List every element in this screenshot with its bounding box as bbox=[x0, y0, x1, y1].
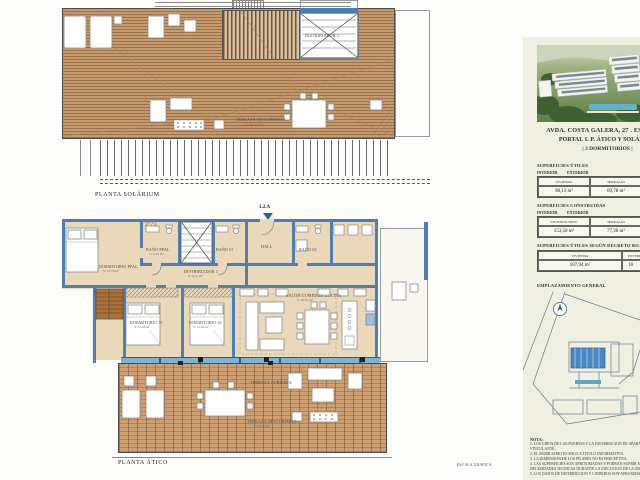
room-label-salon: SALON-COMEDOR-COCINA bbox=[286, 294, 341, 298]
td: 153,50 m² bbox=[538, 226, 590, 237]
plan-sheet: TERRAZA DESCUBIERTA S: 100,97 m² DISTRIB… bbox=[0, 0, 640, 480]
sofa bbox=[150, 100, 166, 122]
toilet bbox=[166, 228, 171, 233]
sofa bbox=[246, 302, 258, 350]
sub-interior: INTERIOR bbox=[537, 210, 557, 215]
appliance bbox=[348, 225, 358, 235]
room-label-hall: HALL bbox=[261, 245, 272, 249]
terrace-furniture bbox=[168, 14, 180, 26]
room-area: S: 11,08 m² bbox=[134, 326, 150, 330]
room-label-terraza-cubierta: TERRAZA CUBIERTA bbox=[250, 381, 292, 385]
stair-wall bbox=[300, 8, 358, 13]
highlighted-building bbox=[571, 348, 605, 368]
terrace-furniture-drawing bbox=[110, 360, 400, 460]
dining-table bbox=[292, 100, 326, 128]
sink bbox=[216, 226, 228, 232]
armchair bbox=[348, 373, 362, 389]
th: VIVIENDA bbox=[538, 177, 590, 186]
table-superficies-construidas: VIVIENDA+PPZC TERRAZAS SOLARIUM 153,50 m… bbox=[537, 216, 640, 238]
solarium-drawing bbox=[55, 0, 455, 200]
toilet bbox=[315, 228, 320, 233]
terrace-furniture bbox=[370, 100, 382, 110]
sun-lounger bbox=[146, 390, 164, 418]
room-area: S: 40,05 m² bbox=[297, 299, 313, 303]
solarium-terrace-area: S: 100,97 m² bbox=[245, 124, 263, 128]
th: EXTERIOR bbox=[622, 251, 640, 260]
td: 98,13 m² bbox=[538, 186, 590, 197]
sun-lounger bbox=[90, 16, 112, 48]
table-superficies-utiles: VIVIENDA TERRAZAS SOLARIUM 98,13 m² 69,7… bbox=[537, 176, 640, 198]
th: TERRAZAS bbox=[590, 177, 640, 186]
room-area: S: 4,21 m² bbox=[188, 275, 203, 279]
room-label-bano-02: BAÑO 02 bbox=[299, 248, 317, 252]
address-line3: | 3 DORMITORIOS | bbox=[530, 146, 640, 152]
nota-line: 5. LOS DATOS DE DISTRIBUCION Y LINDEROS … bbox=[530, 472, 640, 477]
toilet bbox=[233, 228, 238, 233]
address-block: AVDA. COSTA GALERA, 27 . ESTEPONA PORTAL… bbox=[530, 127, 640, 152]
room-label-bano-01: BAÑO 01 bbox=[216, 248, 234, 252]
wardrobe bbox=[184, 288, 232, 297]
sofa bbox=[308, 368, 342, 380]
solarium-stair-label: DISTRIBUIDOR 2 bbox=[305, 34, 339, 38]
td: 69,78 m² bbox=[590, 186, 640, 197]
side-table bbox=[214, 120, 224, 129]
appliance bbox=[362, 225, 372, 235]
site-pool bbox=[575, 380, 601, 384]
door-arc bbox=[261, 222, 274, 235]
nota-line: 1. LOS GIROS DE LAS PUERTAS Y LA DISTRIB… bbox=[530, 442, 640, 452]
solarium-plan-title: PLANTA SOLÁRIUM bbox=[95, 192, 160, 198]
dining-table bbox=[205, 390, 245, 416]
sofa bbox=[260, 302, 284, 313]
nota-line: 4. LAS SUPERFICIES SON APROXIMADAS Y POD… bbox=[530, 462, 640, 472]
sub-interior: INTERIOR bbox=[537, 170, 557, 175]
scale-bar bbox=[457, 470, 525, 480]
sub-exterior: EXTERIOR bbox=[567, 170, 588, 175]
site-plan-map bbox=[523, 292, 640, 437]
fridge bbox=[366, 314, 375, 325]
table-boja: VIVIENDA EXTERIOR 107,94 m² 18 bbox=[537, 250, 640, 272]
solarium-terrace-label: TERRAZA DESCUBIERTA bbox=[236, 118, 286, 122]
nota-block: NOTA: 1. LOS GIROS DE LAS PUERTAS Y LA D… bbox=[530, 437, 640, 476]
room-area: S: 27,07 m² bbox=[254, 425, 270, 429]
section-title-boja: SUPERFICIES ÚTILES SEGÚN DECRETO BOJA 21… bbox=[537, 243, 640, 248]
td: 18 bbox=[622, 260, 640, 271]
oven bbox=[366, 300, 375, 311]
td: 107,94 m² bbox=[538, 260, 622, 271]
room-area: S: 11,61 m² bbox=[193, 326, 209, 330]
coffee-table bbox=[266, 317, 282, 333]
nota-line: 3. LA DIMENSION DE LOS PILARES NO ES PRE… bbox=[530, 457, 640, 462]
terrace-furniture bbox=[148, 16, 164, 38]
scale-label: ESCALA GRAFICA bbox=[457, 464, 492, 468]
th: VIVIENDA+PPZC bbox=[538, 217, 590, 226]
compass-icon bbox=[554, 303, 567, 316]
th: TERRAZAS bbox=[590, 217, 640, 226]
sun-lounger bbox=[122, 390, 140, 418]
atico-plan-title: PLANTA ÁTICO bbox=[118, 460, 168, 466]
wardrobe bbox=[126, 288, 178, 297]
plot-line bbox=[112, 457, 392, 458]
site-plan-title: EMPLAZAMIENTO GENERAL bbox=[537, 283, 606, 288]
address-line1: AVDA. COSTA GALERA, 27 . ESTEPONA bbox=[530, 127, 640, 134]
sofa bbox=[260, 339, 284, 350]
rug bbox=[310, 412, 338, 422]
terrace-chair bbox=[410, 284, 418, 292]
section-title-utiles: SUPERFICIES ÚTILES bbox=[537, 163, 588, 168]
address-line2: PORTAL 1. P. ÁTICO Y SOLÁRIUM bbox=[530, 137, 640, 143]
sub-exterior: EXTERIOR bbox=[567, 210, 588, 215]
side-table bbox=[114, 16, 122, 24]
room-area: S: 5,16 m² bbox=[149, 253, 164, 257]
door-arc bbox=[218, 266, 227, 275]
door-arc bbox=[152, 266, 161, 275]
th: VIVIENDA bbox=[538, 251, 622, 260]
room-area: S: 13,78 m² bbox=[103, 270, 119, 274]
info-panel: AVDA. COSTA GALERA, 27 . ESTEPONA PORTAL… bbox=[523, 37, 640, 480]
interior-stair bbox=[96, 289, 123, 319]
terrace-table bbox=[392, 282, 406, 300]
coffee-table bbox=[312, 388, 334, 402]
sun-lounger bbox=[64, 16, 86, 48]
building-photo bbox=[537, 45, 640, 122]
terrace-furniture bbox=[184, 20, 196, 32]
sofa bbox=[170, 98, 192, 110]
side-table bbox=[124, 376, 134, 386]
sink bbox=[296, 226, 308, 232]
appliance bbox=[334, 225, 344, 235]
dining-table bbox=[305, 310, 329, 344]
td: 77,36 m² bbox=[590, 226, 640, 237]
sink bbox=[146, 226, 159, 232]
side-table bbox=[146, 376, 156, 386]
section-title-construidas: SUPERFICIES CONSTRUIDAS bbox=[537, 203, 605, 208]
